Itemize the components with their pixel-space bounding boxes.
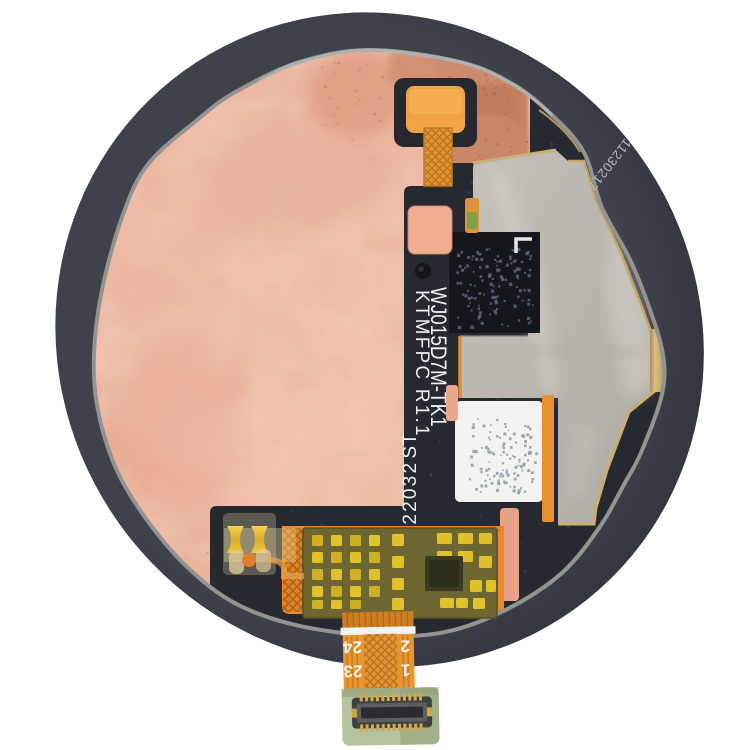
svg-text:24: 24 xyxy=(342,637,362,656)
svg-text:23: 23 xyxy=(343,661,362,680)
svg-text:1: 1 xyxy=(401,660,411,679)
svg-text:2: 2 xyxy=(400,636,410,655)
